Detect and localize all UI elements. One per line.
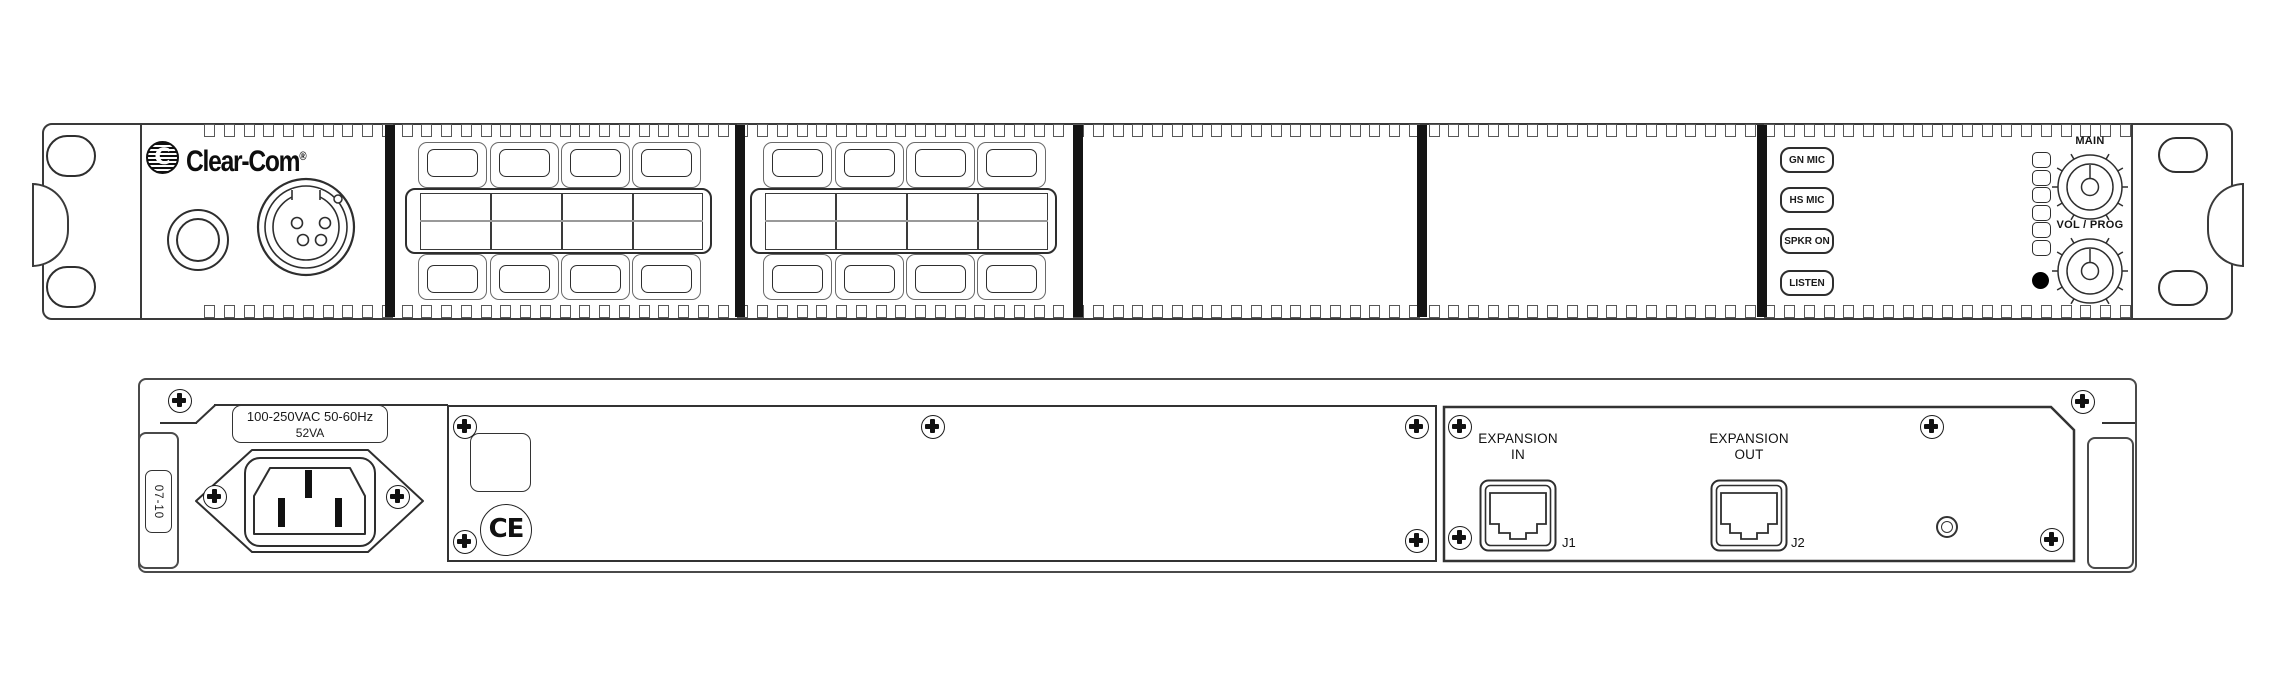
vent-hole <box>1192 124 1203 137</box>
vent-hole <box>797 124 808 137</box>
vent-hole <box>718 305 729 318</box>
vent-hole <box>263 124 274 137</box>
vent-hole <box>994 305 1005 318</box>
vent-hole <box>1527 124 1538 137</box>
vent-hole <box>1666 124 1677 137</box>
talk-key-face[interactable] <box>986 265 1037 293</box>
vent-hole <box>1211 124 1222 137</box>
power-rating-label: 100-250VAC 50-60Hz 52VA <box>232 405 388 443</box>
main-knob-label: MAIN <box>2040 135 2140 147</box>
vent-hole <box>224 124 235 137</box>
vent-hole <box>1606 124 1617 137</box>
vent-hole <box>1468 124 1479 137</box>
vent-hole <box>1488 124 1499 137</box>
screw <box>203 485 227 509</box>
talk-key[interactable] <box>835 142 904 188</box>
vent-hole <box>1903 305 1914 318</box>
screw <box>386 485 410 509</box>
led-indicator <box>2032 170 2051 186</box>
vent-hole <box>1606 305 1617 318</box>
screw <box>2040 528 2064 552</box>
vent-hole <box>1784 124 1795 137</box>
vent-hole <box>1942 305 1953 318</box>
talk-key[interactable] <box>490 142 559 188</box>
mounting-hole <box>1936 516 1958 538</box>
vent-hole <box>1271 305 1282 318</box>
vent-hole <box>816 305 827 318</box>
talk-key[interactable] <box>906 254 975 300</box>
vent-hole <box>1666 305 1677 318</box>
power-led-dot <box>2032 272 2049 289</box>
vent-hole <box>421 305 432 318</box>
vent-hole <box>1448 124 1459 137</box>
talk-key-face[interactable] <box>570 265 621 293</box>
ce-mark-text: CE <box>489 514 524 544</box>
vent-hole <box>1113 124 1124 137</box>
vent-hole <box>1330 124 1341 137</box>
ce-mark: CE <box>480 504 532 556</box>
expansion-in-label: EXPANSION IN <box>1468 431 1568 463</box>
vent-hole <box>481 124 492 137</box>
vent-hole <box>1745 124 1756 137</box>
vent-hole <box>678 305 689 318</box>
vent-hole <box>303 124 314 137</box>
vent-hole <box>1389 305 1400 318</box>
gn-mic-button[interactable]: GN MIC <box>1780 147 1834 173</box>
rear-face-edge <box>2102 422 2135 424</box>
talk-key-face[interactable] <box>844 265 895 293</box>
vent-hole <box>797 305 808 318</box>
screw <box>1448 526 1472 550</box>
vent-hole <box>974 305 985 318</box>
vent-hole <box>777 305 788 318</box>
screw <box>921 415 945 439</box>
vent-hole <box>204 305 215 318</box>
talk-key-face[interactable] <box>570 149 621 177</box>
vent-hole <box>1843 124 1854 137</box>
vent-hole <box>579 124 590 137</box>
vent-hole <box>658 305 669 318</box>
talk-key-face[interactable] <box>427 265 478 293</box>
vent-hole <box>1369 124 1380 137</box>
screw <box>168 389 192 413</box>
vent-hole <box>1922 124 1933 137</box>
vent-hole <box>1725 124 1736 137</box>
talk-key[interactable] <box>835 254 904 300</box>
headset-jack-inner <box>176 218 220 262</box>
expansion-out-rj45-jack <box>1710 479 1788 552</box>
vent-hole <box>1527 305 1538 318</box>
vent-hole <box>520 124 531 137</box>
vent-row-top <box>204 124 2131 137</box>
talk-key-face[interactable] <box>772 265 823 293</box>
logo-letter: C <box>154 147 170 169</box>
vent-hole <box>1271 124 1282 137</box>
vent-hole <box>1567 124 1578 137</box>
j2-label: J2 <box>1791 535 1805 550</box>
vent-hole <box>1508 124 1519 137</box>
expansion-in-line2: IN <box>1468 447 1568 463</box>
vent-hole <box>1093 124 1104 137</box>
talk-key-face[interactable] <box>499 149 550 177</box>
headset-jack <box>167 209 229 271</box>
j1-label: J1 <box>1562 535 1576 550</box>
vent-hole <box>1468 305 1479 318</box>
vent-row-bottom <box>204 305 2131 318</box>
vent-hole <box>2021 124 2032 137</box>
vent-hole <box>1922 305 1933 318</box>
vent-hole <box>1389 124 1400 137</box>
vent-hole <box>1429 124 1440 137</box>
vent-hole <box>362 305 373 318</box>
screw <box>453 530 477 554</box>
vent-hole <box>441 124 452 137</box>
vent-hole <box>856 305 867 318</box>
vent-hole <box>757 124 768 137</box>
vent-hole <box>342 124 353 137</box>
rack-ear-hole <box>2158 270 2208 306</box>
talk-key[interactable] <box>418 142 487 188</box>
talk-key[interactable] <box>977 142 1046 188</box>
vent-hole <box>1053 305 1064 318</box>
talk-key-face[interactable] <box>915 149 966 177</box>
vent-hole <box>1705 124 1716 137</box>
registered-mark: ® <box>299 149 306 163</box>
vent-hole <box>1251 124 1262 137</box>
vent-hole <box>1685 305 1696 318</box>
serial-label-box: 07-10 <box>145 470 172 533</box>
vent-hole <box>1014 305 1025 318</box>
vent-hole <box>698 124 709 137</box>
vent-hole <box>1547 124 1558 137</box>
vent-hole <box>500 124 511 137</box>
vent-hole <box>619 305 630 318</box>
vent-hole <box>1824 305 1835 318</box>
vent-hole <box>323 124 334 137</box>
led-column <box>2032 152 2051 256</box>
vent-hole <box>876 124 887 137</box>
expansion-in-rj45-jack <box>1479 479 1557 552</box>
vent-hole <box>461 124 472 137</box>
talk-key[interactable] <box>977 254 1046 300</box>
vent-hole <box>1962 124 1973 137</box>
vent-hole <box>915 124 926 137</box>
vent-hole <box>994 124 1005 137</box>
screw <box>2071 390 2095 414</box>
talk-key-face[interactable] <box>986 149 1037 177</box>
front-panel <box>42 123 2233 320</box>
led-indicator <box>2032 240 2051 256</box>
vent-hole <box>1843 305 1854 318</box>
vent-hole <box>1863 305 1874 318</box>
vent-hole <box>1745 305 1756 318</box>
module-divider <box>1073 125 1083 317</box>
vent-hole <box>836 124 847 137</box>
listen-button[interactable]: LISTEN <box>1780 270 1834 296</box>
vent-hole <box>303 305 314 318</box>
vent-hole <box>1429 305 1440 318</box>
vent-hole <box>876 305 887 318</box>
vent-hole <box>955 124 966 137</box>
vent-hole <box>1903 124 1914 137</box>
vent-hole <box>1587 305 1598 318</box>
vent-hole <box>1824 124 1835 137</box>
vent-hole <box>2001 124 2012 137</box>
vent-hole <box>1784 305 1795 318</box>
vent-hole <box>540 124 551 137</box>
vent-hole <box>836 305 847 318</box>
vent-hole <box>1448 305 1459 318</box>
talk-key[interactable] <box>763 254 832 300</box>
clearcom-logo-icon: C <box>146 141 179 174</box>
vent-hole <box>935 305 946 318</box>
vent-hole <box>777 124 788 137</box>
vent-hole <box>639 124 650 137</box>
module-divider <box>1417 125 1427 317</box>
left-ear-divider <box>140 124 142 318</box>
vent-hole <box>856 124 867 137</box>
vent-hole <box>1172 124 1183 137</box>
vent-hole <box>1804 124 1815 137</box>
vent-hole <box>1962 305 1973 318</box>
rack-ear-hole <box>46 135 96 177</box>
screw <box>1405 415 1429 439</box>
expansion-out-label: EXPANSION OUT <box>1699 431 1799 463</box>
vent-hole <box>1804 305 1815 318</box>
vent-hole <box>1646 124 1657 137</box>
vent-hole <box>421 124 432 137</box>
vol-prog-knob[interactable] <box>2050 231 2130 311</box>
rear-cutout <box>470 433 531 492</box>
vent-hole <box>342 305 353 318</box>
vent-hole <box>1330 305 1341 318</box>
talk-key[interactable] <box>561 142 630 188</box>
talk-key-face[interactable] <box>641 265 692 293</box>
expansion-out-line2: OUT <box>1699 447 1799 463</box>
vent-hole <box>1014 124 1025 137</box>
vent-hole <box>1883 124 1894 137</box>
vent-hole <box>402 305 413 318</box>
vent-hole <box>1310 305 1321 318</box>
vent-hole <box>1685 124 1696 137</box>
vent-hole <box>1646 305 1657 318</box>
talk-key-face[interactable] <box>641 149 692 177</box>
vent-hole <box>1231 305 1242 318</box>
module-divider <box>385 125 395 317</box>
vent-hole <box>1863 124 1874 137</box>
vent-hole <box>1152 124 1163 137</box>
vent-hole <box>1034 124 1045 137</box>
vent-hole <box>244 124 255 137</box>
vent-hole <box>599 305 610 318</box>
rear-right-ear <box>2087 437 2134 569</box>
module-divider <box>1757 125 1767 317</box>
screw <box>1448 415 1472 439</box>
talk-key-face[interactable] <box>427 149 478 177</box>
module-divider <box>735 125 745 317</box>
vent-hole <box>283 305 294 318</box>
vent-hole <box>520 305 531 318</box>
vent-hole <box>1251 305 1262 318</box>
vent-hole <box>579 305 590 318</box>
rack-ear-hole <box>46 266 96 308</box>
panel-drawing: C Clear-Com® <box>0 0 2276 690</box>
vent-hole <box>678 124 689 137</box>
vent-hole <box>1883 305 1894 318</box>
vent-hole <box>2001 305 2012 318</box>
vent-hole <box>500 305 511 318</box>
power-rating-line1: 100-250VAC 50-60Hz <box>233 409 387 426</box>
vent-hole <box>955 305 966 318</box>
vol-prog-knob-label: VOL / PROG <box>2040 219 2140 231</box>
vent-hole <box>263 305 274 318</box>
vent-hole <box>1942 124 1953 137</box>
vent-hole <box>658 124 669 137</box>
vent-hole <box>283 124 294 137</box>
vent-hole <box>1053 124 1064 137</box>
talk-key-face[interactable] <box>499 265 550 293</box>
expansion-in-line1: EXPANSION <box>1468 431 1568 447</box>
rear-face-edge <box>160 422 197 424</box>
screw <box>1920 415 1944 439</box>
talk-key-face[interactable] <box>772 149 823 177</box>
vent-hole <box>540 305 551 318</box>
power-rating-line2: 52VA <box>233 426 387 442</box>
vent-hole <box>1626 124 1637 137</box>
talk-key[interactable] <box>632 254 701 300</box>
vent-hole <box>1508 305 1519 318</box>
vent-hole <box>1725 305 1736 318</box>
vent-hole <box>599 124 610 137</box>
vent-hole <box>718 124 729 137</box>
expansion-out-line1: EXPANSION <box>1699 431 1799 447</box>
vent-hole <box>1982 305 1993 318</box>
vent-hole <box>1290 305 1301 318</box>
vent-hole <box>1369 305 1380 318</box>
talk-key-face[interactable] <box>915 265 966 293</box>
vent-hole <box>895 124 906 137</box>
display-grid-line <box>765 220 1048 222</box>
vent-hole <box>1211 305 1222 318</box>
vent-hole <box>698 305 709 318</box>
vent-hole <box>1192 305 1203 318</box>
talk-key[interactable] <box>490 254 559 300</box>
vent-hole <box>1488 305 1499 318</box>
talk-key[interactable] <box>418 254 487 300</box>
talk-key[interactable] <box>632 142 701 188</box>
serial-label: 07-10 <box>153 484 165 518</box>
vent-hole <box>1113 305 1124 318</box>
vent-hole <box>816 124 827 137</box>
vent-hole <box>224 305 235 318</box>
vent-hole <box>244 305 255 318</box>
vent-hole <box>619 124 630 137</box>
vent-hole <box>757 305 768 318</box>
vent-hole <box>560 124 571 137</box>
vent-hole <box>1547 305 1558 318</box>
vent-hole <box>1982 124 1993 137</box>
vent-hole <box>560 305 571 318</box>
vent-hole <box>639 305 650 318</box>
vent-hole <box>974 124 985 137</box>
vent-hole <box>1350 124 1361 137</box>
vent-hole <box>362 124 373 137</box>
vent-hole <box>915 305 926 318</box>
vent-hole <box>323 305 334 318</box>
rack-ear-hole <box>2158 137 2208 173</box>
vent-hole <box>1626 305 1637 318</box>
vent-hole <box>1132 305 1143 318</box>
vent-hole <box>1310 124 1321 137</box>
vent-hole <box>1034 305 1045 318</box>
vent-hole <box>935 124 946 137</box>
main-knob[interactable] <box>2050 147 2130 227</box>
vent-hole <box>1705 305 1716 318</box>
vent-hole <box>2021 305 2032 318</box>
hs-mic-button[interactable]: HS MIC <box>1780 187 1834 213</box>
vent-hole <box>1152 305 1163 318</box>
vent-hole <box>204 124 215 137</box>
spkr-on-button[interactable]: SPKR ON <box>1780 228 1834 254</box>
rear-left-ear: 07-10 <box>138 432 179 569</box>
led-indicator <box>2032 152 2051 168</box>
vent-hole <box>1290 124 1301 137</box>
vent-hole <box>1350 305 1361 318</box>
vent-hole <box>1132 124 1143 137</box>
vent-hole <box>481 305 492 318</box>
vent-hole <box>402 124 413 137</box>
vent-hole <box>1567 305 1578 318</box>
display-grid-line <box>420 220 703 222</box>
screw <box>453 415 477 439</box>
talk-key-face[interactable] <box>844 149 895 177</box>
talk-key[interactable] <box>906 142 975 188</box>
talk-key[interactable] <box>561 254 630 300</box>
vent-hole <box>441 305 452 318</box>
vent-hole <box>1172 305 1183 318</box>
vent-hole <box>1093 305 1104 318</box>
vent-hole <box>895 305 906 318</box>
talk-key[interactable] <box>763 142 832 188</box>
mounting-hole-inner <box>1941 521 1953 533</box>
screw <box>1405 529 1429 553</box>
xlr-headset-connector <box>252 169 362 287</box>
vent-hole <box>461 305 472 318</box>
led-indicator <box>2032 187 2051 203</box>
vent-hole <box>1231 124 1242 137</box>
vent-hole <box>1587 124 1598 137</box>
